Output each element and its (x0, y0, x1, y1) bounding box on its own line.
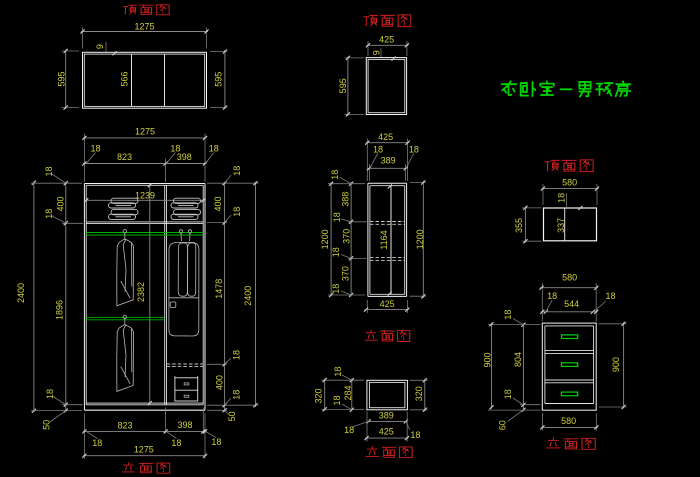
svg-text:18: 18 (605, 291, 615, 301)
svg-text:900: 900 (482, 352, 492, 367)
svg-text:337: 337 (556, 218, 566, 233)
svg-text:18: 18 (92, 438, 102, 448)
svg-text:580: 580 (562, 177, 577, 187)
svg-text:18: 18 (331, 247, 341, 257)
svg-text:1275: 1275 (134, 444, 154, 454)
svg-text:18: 18 (232, 166, 242, 176)
svg-text:580: 580 (562, 272, 577, 282)
svg-text:18: 18 (373, 145, 383, 155)
svg-text:370: 370 (342, 229, 352, 244)
svg-text:2400: 2400 (243, 286, 253, 306)
svg-text:398: 398 (177, 152, 192, 162)
svg-text:580: 580 (561, 416, 576, 426)
svg-text:18: 18 (171, 438, 181, 448)
svg-text:18: 18 (330, 170, 340, 180)
svg-text:18: 18 (332, 395, 342, 405)
svg-text:425: 425 (378, 132, 393, 142)
svg-text:544: 544 (564, 299, 579, 309)
svg-text:355: 355 (514, 218, 524, 233)
svg-text:823: 823 (117, 421, 132, 431)
svg-text:18: 18 (232, 390, 242, 400)
svg-text:389: 389 (379, 411, 394, 421)
svg-text:18: 18 (410, 430, 420, 440)
svg-text:320: 320 (414, 386, 424, 401)
svg-text:284: 284 (343, 385, 353, 400)
svg-text:18: 18 (90, 144, 100, 154)
svg-text:2400: 2400 (16, 283, 26, 303)
svg-text:18: 18 (503, 310, 513, 320)
svg-text:50: 50 (227, 411, 237, 421)
svg-text:9: 9 (372, 50, 382, 55)
svg-text:425: 425 (380, 299, 395, 309)
svg-text:1164: 1164 (379, 230, 389, 249)
svg-text:370: 370 (340, 266, 350, 281)
svg-text:2382: 2382 (136, 282, 146, 302)
svg-text:18: 18 (209, 144, 219, 154)
svg-text:595: 595 (56, 71, 66, 86)
svg-text:1275: 1275 (134, 21, 154, 31)
svg-text:320: 320 (314, 388, 324, 403)
svg-text:18: 18 (331, 284, 341, 294)
svg-text:1200: 1200 (320, 229, 330, 249)
svg-text:50: 50 (42, 420, 52, 430)
svg-text:18: 18 (45, 389, 55, 399)
svg-text:60: 60 (497, 420, 507, 430)
svg-text:595: 595 (214, 72, 224, 87)
svg-text:1200: 1200 (415, 229, 425, 249)
svg-text:18: 18 (344, 425, 354, 435)
svg-text:400: 400 (215, 375, 225, 390)
svg-text:823: 823 (117, 152, 132, 162)
svg-text:18: 18 (44, 166, 54, 176)
svg-text:18: 18 (44, 209, 54, 219)
svg-text:389: 389 (381, 155, 396, 165)
svg-text:18: 18 (211, 437, 221, 447)
svg-text:1275: 1275 (135, 127, 155, 137)
svg-text:595: 595 (338, 78, 348, 93)
svg-text:18: 18 (332, 212, 342, 222)
svg-text:804: 804 (513, 352, 523, 367)
svg-text:400: 400 (56, 196, 66, 211)
svg-text:18: 18 (547, 291, 557, 301)
svg-text:566: 566 (119, 71, 129, 86)
svg-text:18: 18 (232, 350, 242, 360)
svg-text:398: 398 (177, 420, 192, 430)
svg-text:900: 900 (611, 357, 621, 372)
svg-text:388: 388 (340, 192, 350, 207)
svg-text:18: 18 (503, 389, 513, 399)
svg-text:18: 18 (232, 207, 242, 217)
svg-text:18: 18 (333, 367, 343, 377)
svg-text:9: 9 (95, 44, 105, 49)
svg-text:425: 425 (379, 427, 394, 437)
svg-text:18: 18 (556, 193, 566, 203)
svg-text:1478: 1478 (214, 279, 224, 299)
svg-text:400: 400 (213, 196, 223, 211)
svg-text:18: 18 (409, 145, 419, 155)
svg-text:425: 425 (379, 34, 394, 44)
svg-text:1896: 1896 (55, 300, 65, 320)
